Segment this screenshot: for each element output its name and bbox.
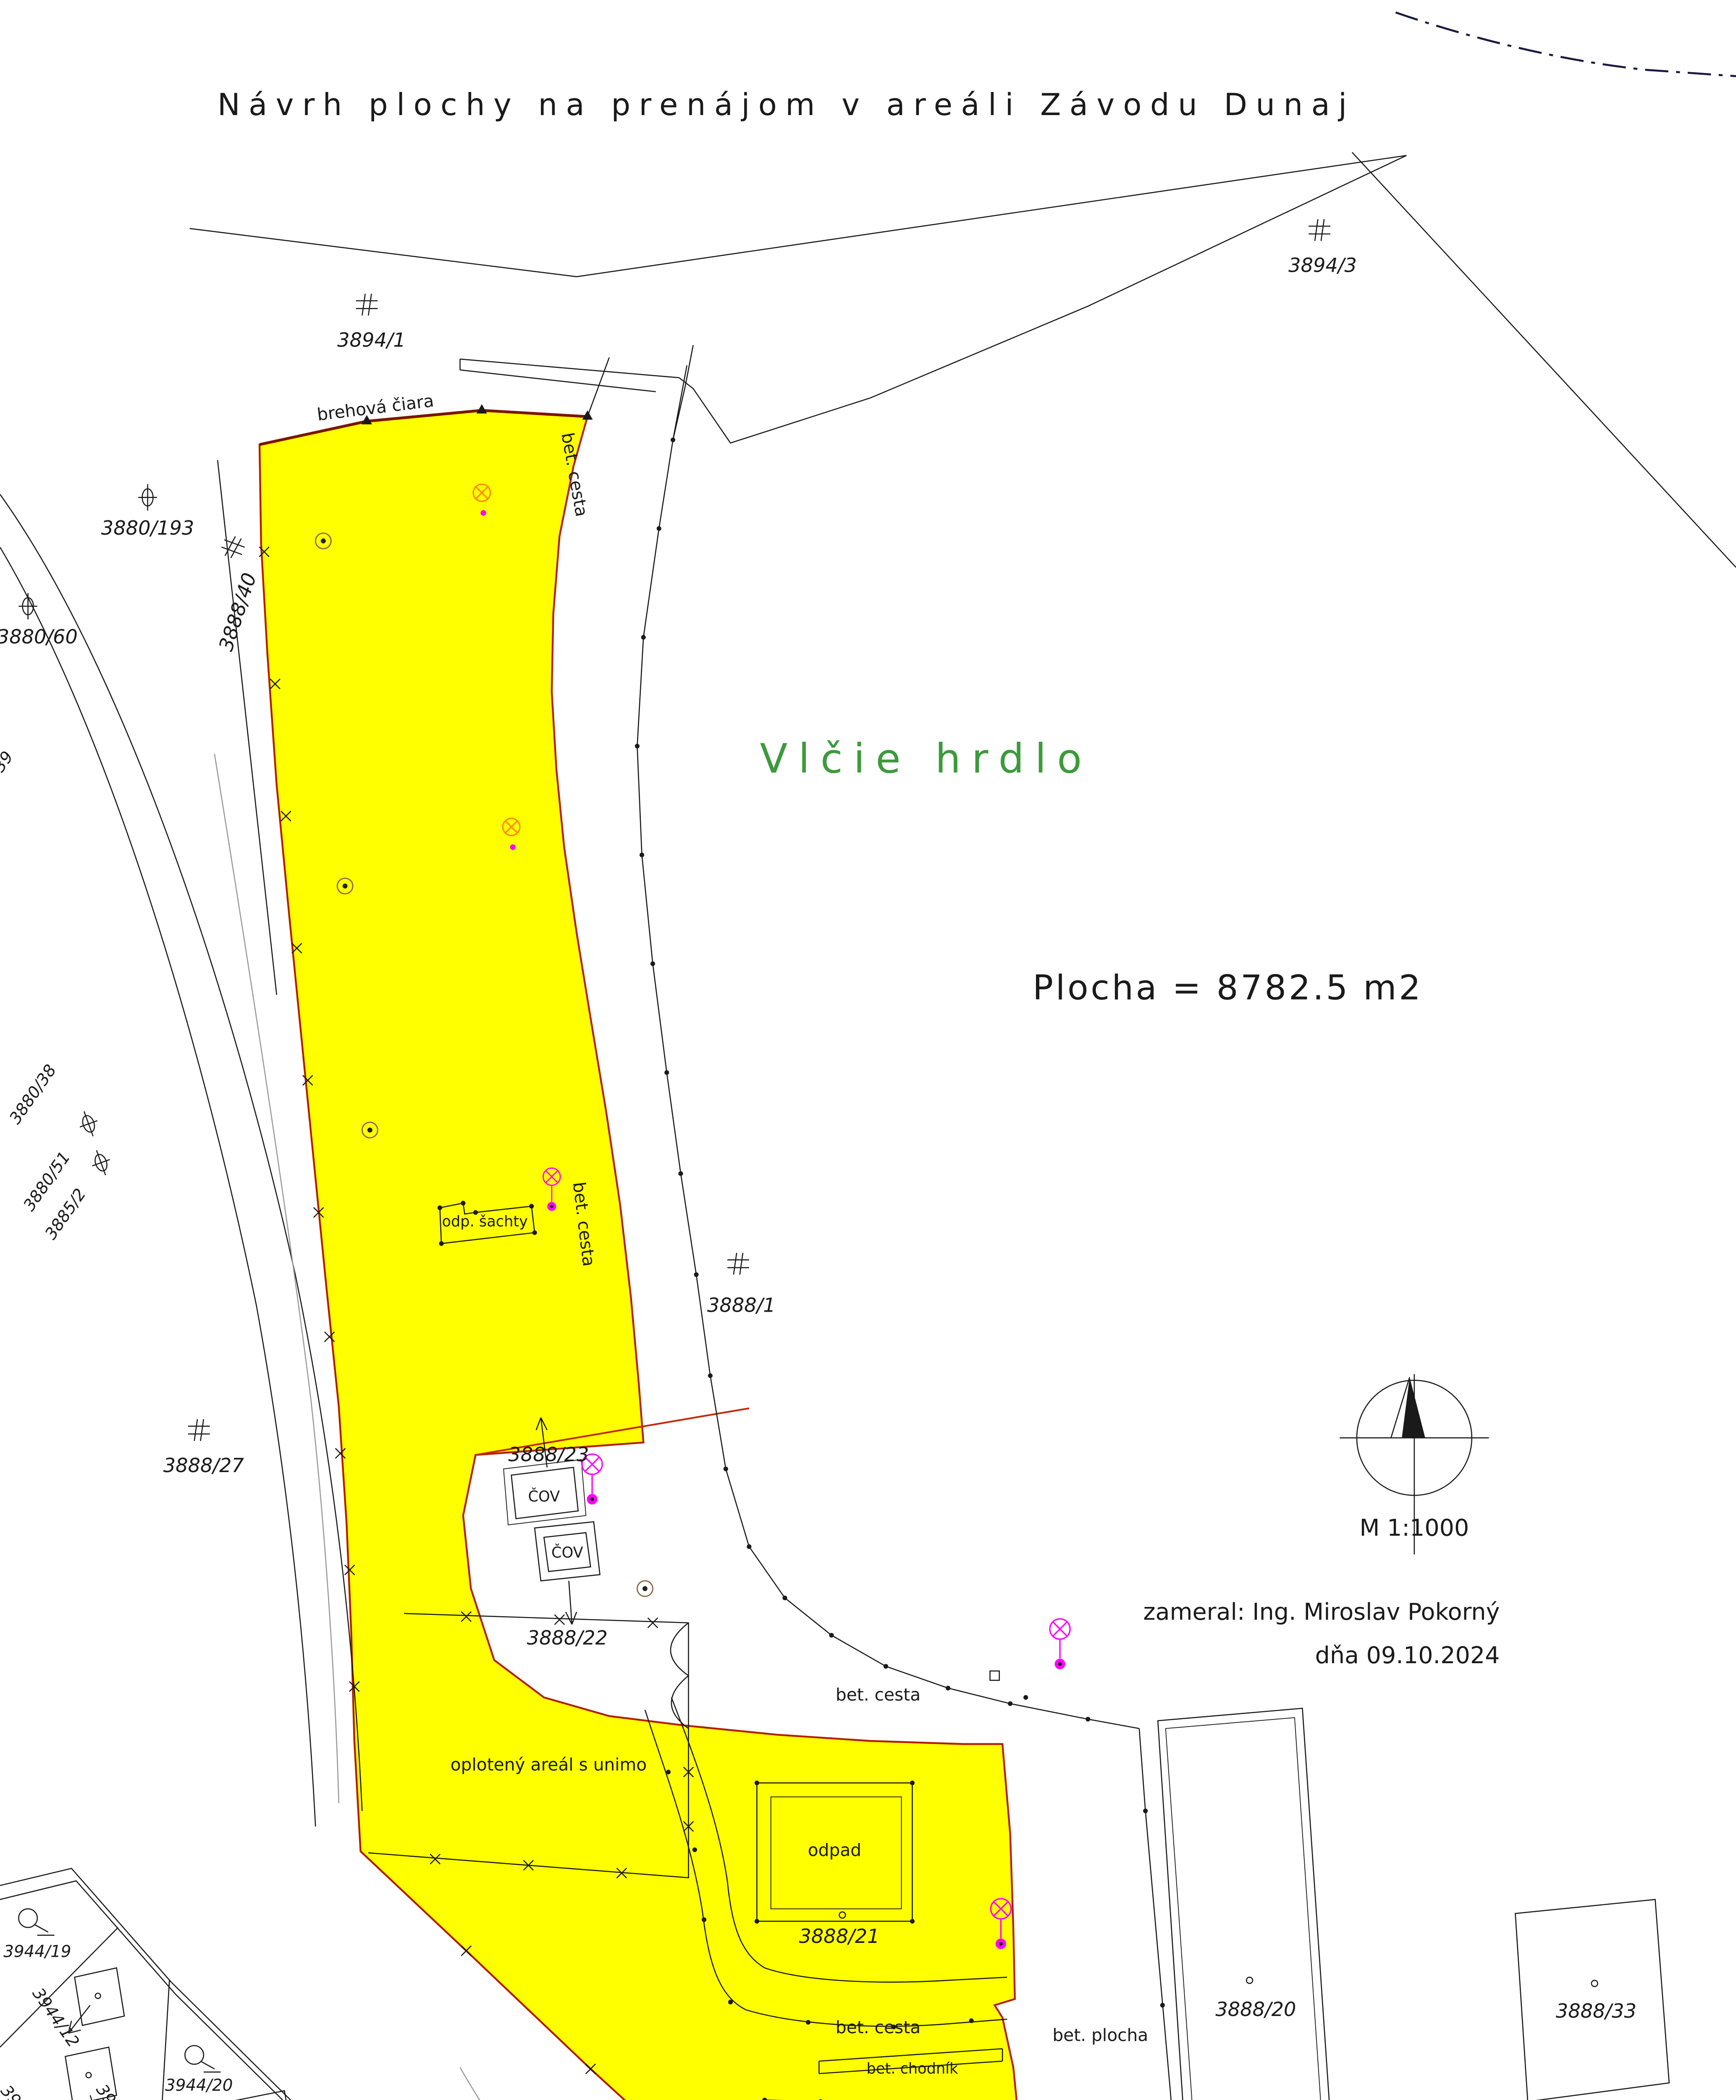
- locality-label: Vlčie hrdlo: [760, 735, 1093, 782]
- parcel-3880-60: 3880/60: [0, 625, 78, 648]
- parcel-3894-3: 3894/3: [1288, 254, 1357, 277]
- lamp-icon: [1050, 1619, 1070, 1669]
- concrete-area-label: bet. plocha: [1052, 2025, 1148, 2045]
- parcel-3944-21: 3944/21: [92, 2081, 146, 2100]
- lease-area-highlight: [260, 410, 1162, 2100]
- parcel-3888-1: 3888/1: [707, 1294, 776, 1317]
- parcel-3888-20: 3888/20: [1215, 1998, 1296, 2021]
- parcel-3888-21: 3888/21: [799, 1925, 879, 1948]
- fenced-area-label: oplotený areál s unimo: [451, 1754, 647, 1774]
- waste-label: odpad: [808, 1840, 861, 1860]
- north-needle-icon: [1402, 1377, 1425, 1438]
- building-3888-20: [1158, 1708, 1340, 2100]
- survey-point-icon: [637, 1581, 653, 1596]
- parcel-3888-33: 3888/33: [1556, 2000, 1636, 2022]
- waterline-dashdot: [1395, 13, 1736, 76]
- page-title: Návrh plochy na prenájom v areáli Závodu…: [218, 87, 1356, 123]
- cadastral-map: Návrh plochy na prenájom v areáli Závodu…: [0, 0, 1736, 2100]
- cov-label-2: ČOV: [551, 1543, 583, 1561]
- surveyor-line2: dňa 09.10.2024: [1315, 1642, 1500, 1669]
- parcel-3944-12: 3944/12: [29, 1984, 83, 2051]
- sidewalk-label: bet. chodník: [867, 2060, 958, 2077]
- parcel-3888-27: 3888/27: [163, 1454, 244, 1477]
- parcel-3888-22: 3888/22: [527, 1627, 608, 1649]
- road-label-lower: bet. cesta: [836, 2017, 920, 2037]
- parcel-3880-193: 3880/193: [101, 517, 194, 539]
- cov-label-1: ČOV: [528, 1488, 560, 1505]
- road-label-cross: bet. cesta: [836, 1685, 920, 1705]
- parcel-3888-40: 3888/40: [214, 570, 261, 654]
- waste-shafts-label: odp. šachty: [442, 1213, 527, 1230]
- parcel-3944-20: 3944/20: [165, 2076, 233, 2095]
- parcel-3944-58: 3944/58: [0, 2082, 55, 2100]
- parcel-39-partial: 39: [0, 748, 17, 776]
- parcel-3894-1: 3894/1: [337, 328, 406, 351]
- lease-area-polygon: [260, 410, 1162, 2100]
- scale-label: M 1:1000: [1360, 1515, 1469, 1542]
- parcel-3888-23: 3888/23: [508, 1443, 589, 1466]
- surveyor-line1: zameral: Ing. Miroslav Pokorný: [1143, 1598, 1500, 1625]
- area-label: Plocha = 8782.5 m2: [1033, 968, 1423, 1008]
- parcel-3944-19: 3944/19: [3, 1942, 71, 1961]
- parcel-3880-38: 3880/38: [6, 1061, 60, 1128]
